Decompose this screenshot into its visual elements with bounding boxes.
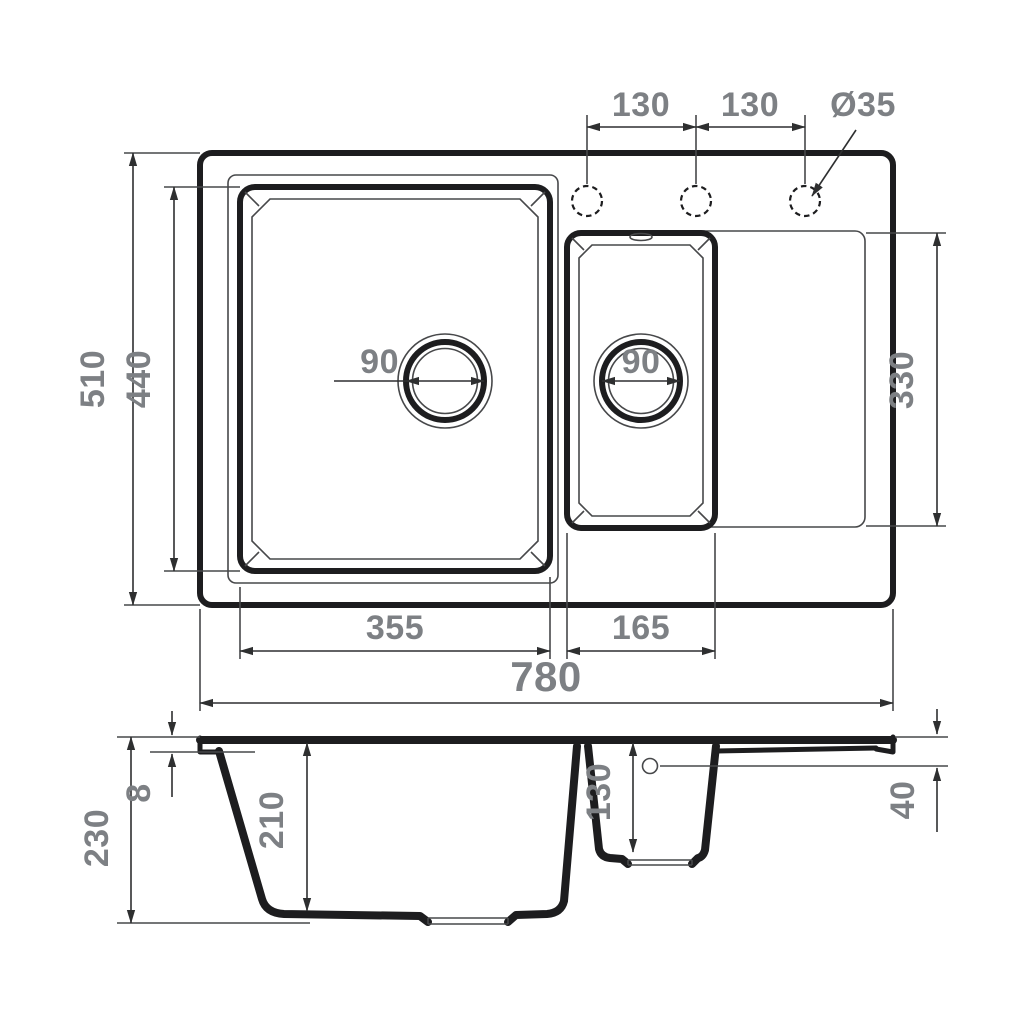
sink-technical-drawing: 130 130 Ø35 510 440 330 90 bbox=[0, 0, 1024, 1024]
dim-small-bowl-depth-label: 130 bbox=[580, 763, 618, 821]
tap-hole-2 bbox=[681, 186, 711, 216]
dim-overall-depth-label: 510 bbox=[74, 350, 112, 408]
small-drain-recess bbox=[628, 860, 692, 865]
dim-main-bowl-width-label: 355 bbox=[366, 609, 424, 647]
drawing-canvas: 130 130 Ø35 510 440 330 90 bbox=[0, 0, 1024, 1024]
dim-bowl-area-depth-label: 440 bbox=[120, 350, 158, 408]
dim-tap-diameter-label: Ø35 bbox=[830, 86, 896, 124]
dim-small-bowl-width-label: 165 bbox=[612, 609, 670, 647]
dim-main-bowl-width: 355 bbox=[240, 577, 550, 659]
dim-tap-spacing-right-label: 130 bbox=[721, 86, 779, 124]
dim-drainboard-edge-height-label: 40 bbox=[884, 781, 922, 820]
overflow-hole bbox=[643, 759, 658, 774]
top-view: 130 130 Ø35 510 440 330 90 bbox=[74, 86, 946, 711]
dim-rim-height-label: 8 bbox=[120, 783, 158, 802]
section-profile bbox=[200, 737, 893, 924]
dim-overall-width: 780 bbox=[200, 609, 893, 711]
dim-small-bowl-width: 165 bbox=[567, 533, 715, 659]
dim-tap-hole-diameter: Ø35 bbox=[812, 86, 896, 196]
dim-total-depth-label: 230 bbox=[78, 809, 116, 867]
dim-bowl-area-depth: 440 bbox=[120, 187, 240, 571]
dim-rim-height: 8 bbox=[120, 711, 255, 803]
dim-tap-spacing-left-label: 130 bbox=[612, 86, 670, 124]
dim-drainboard-edge-height: 40 bbox=[660, 709, 948, 832]
dim-tap-hole-spacing: 130 130 bbox=[587, 86, 805, 184]
dim-overall-width-label: 780 bbox=[510, 653, 582, 700]
dim-drainboard-depth: 330 bbox=[866, 233, 946, 526]
dim-small-drain-label: 90 bbox=[622, 343, 661, 381]
section-view: 230 8 210 130 40 bbox=[78, 709, 948, 924]
tap-hole-1 bbox=[572, 186, 602, 216]
dim-main-bowl-depth-label: 210 bbox=[253, 791, 291, 849]
main-drain-recess bbox=[428, 918, 508, 924]
dim-main-drain-label: 90 bbox=[360, 343, 399, 381]
dim-drainboard-depth-label: 330 bbox=[883, 351, 921, 409]
